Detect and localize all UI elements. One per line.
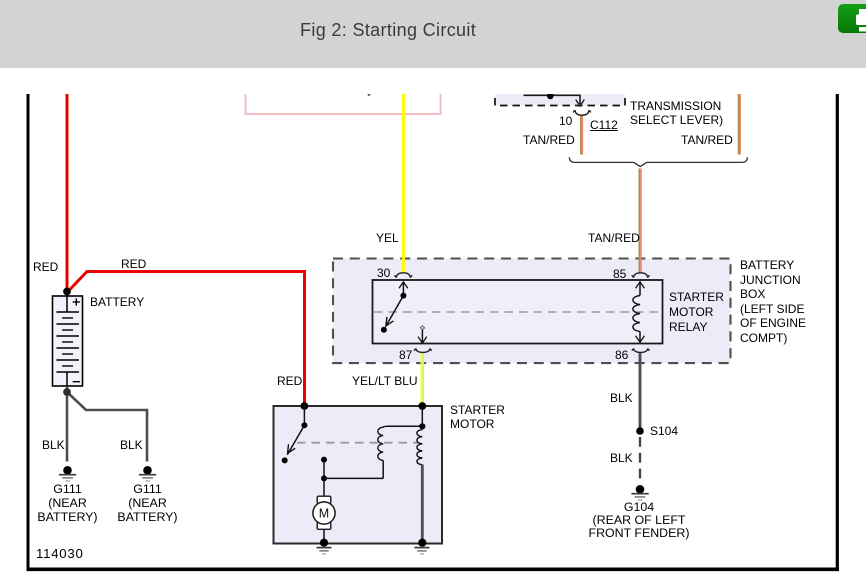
svg-text:M: M bbox=[319, 507, 329, 521]
